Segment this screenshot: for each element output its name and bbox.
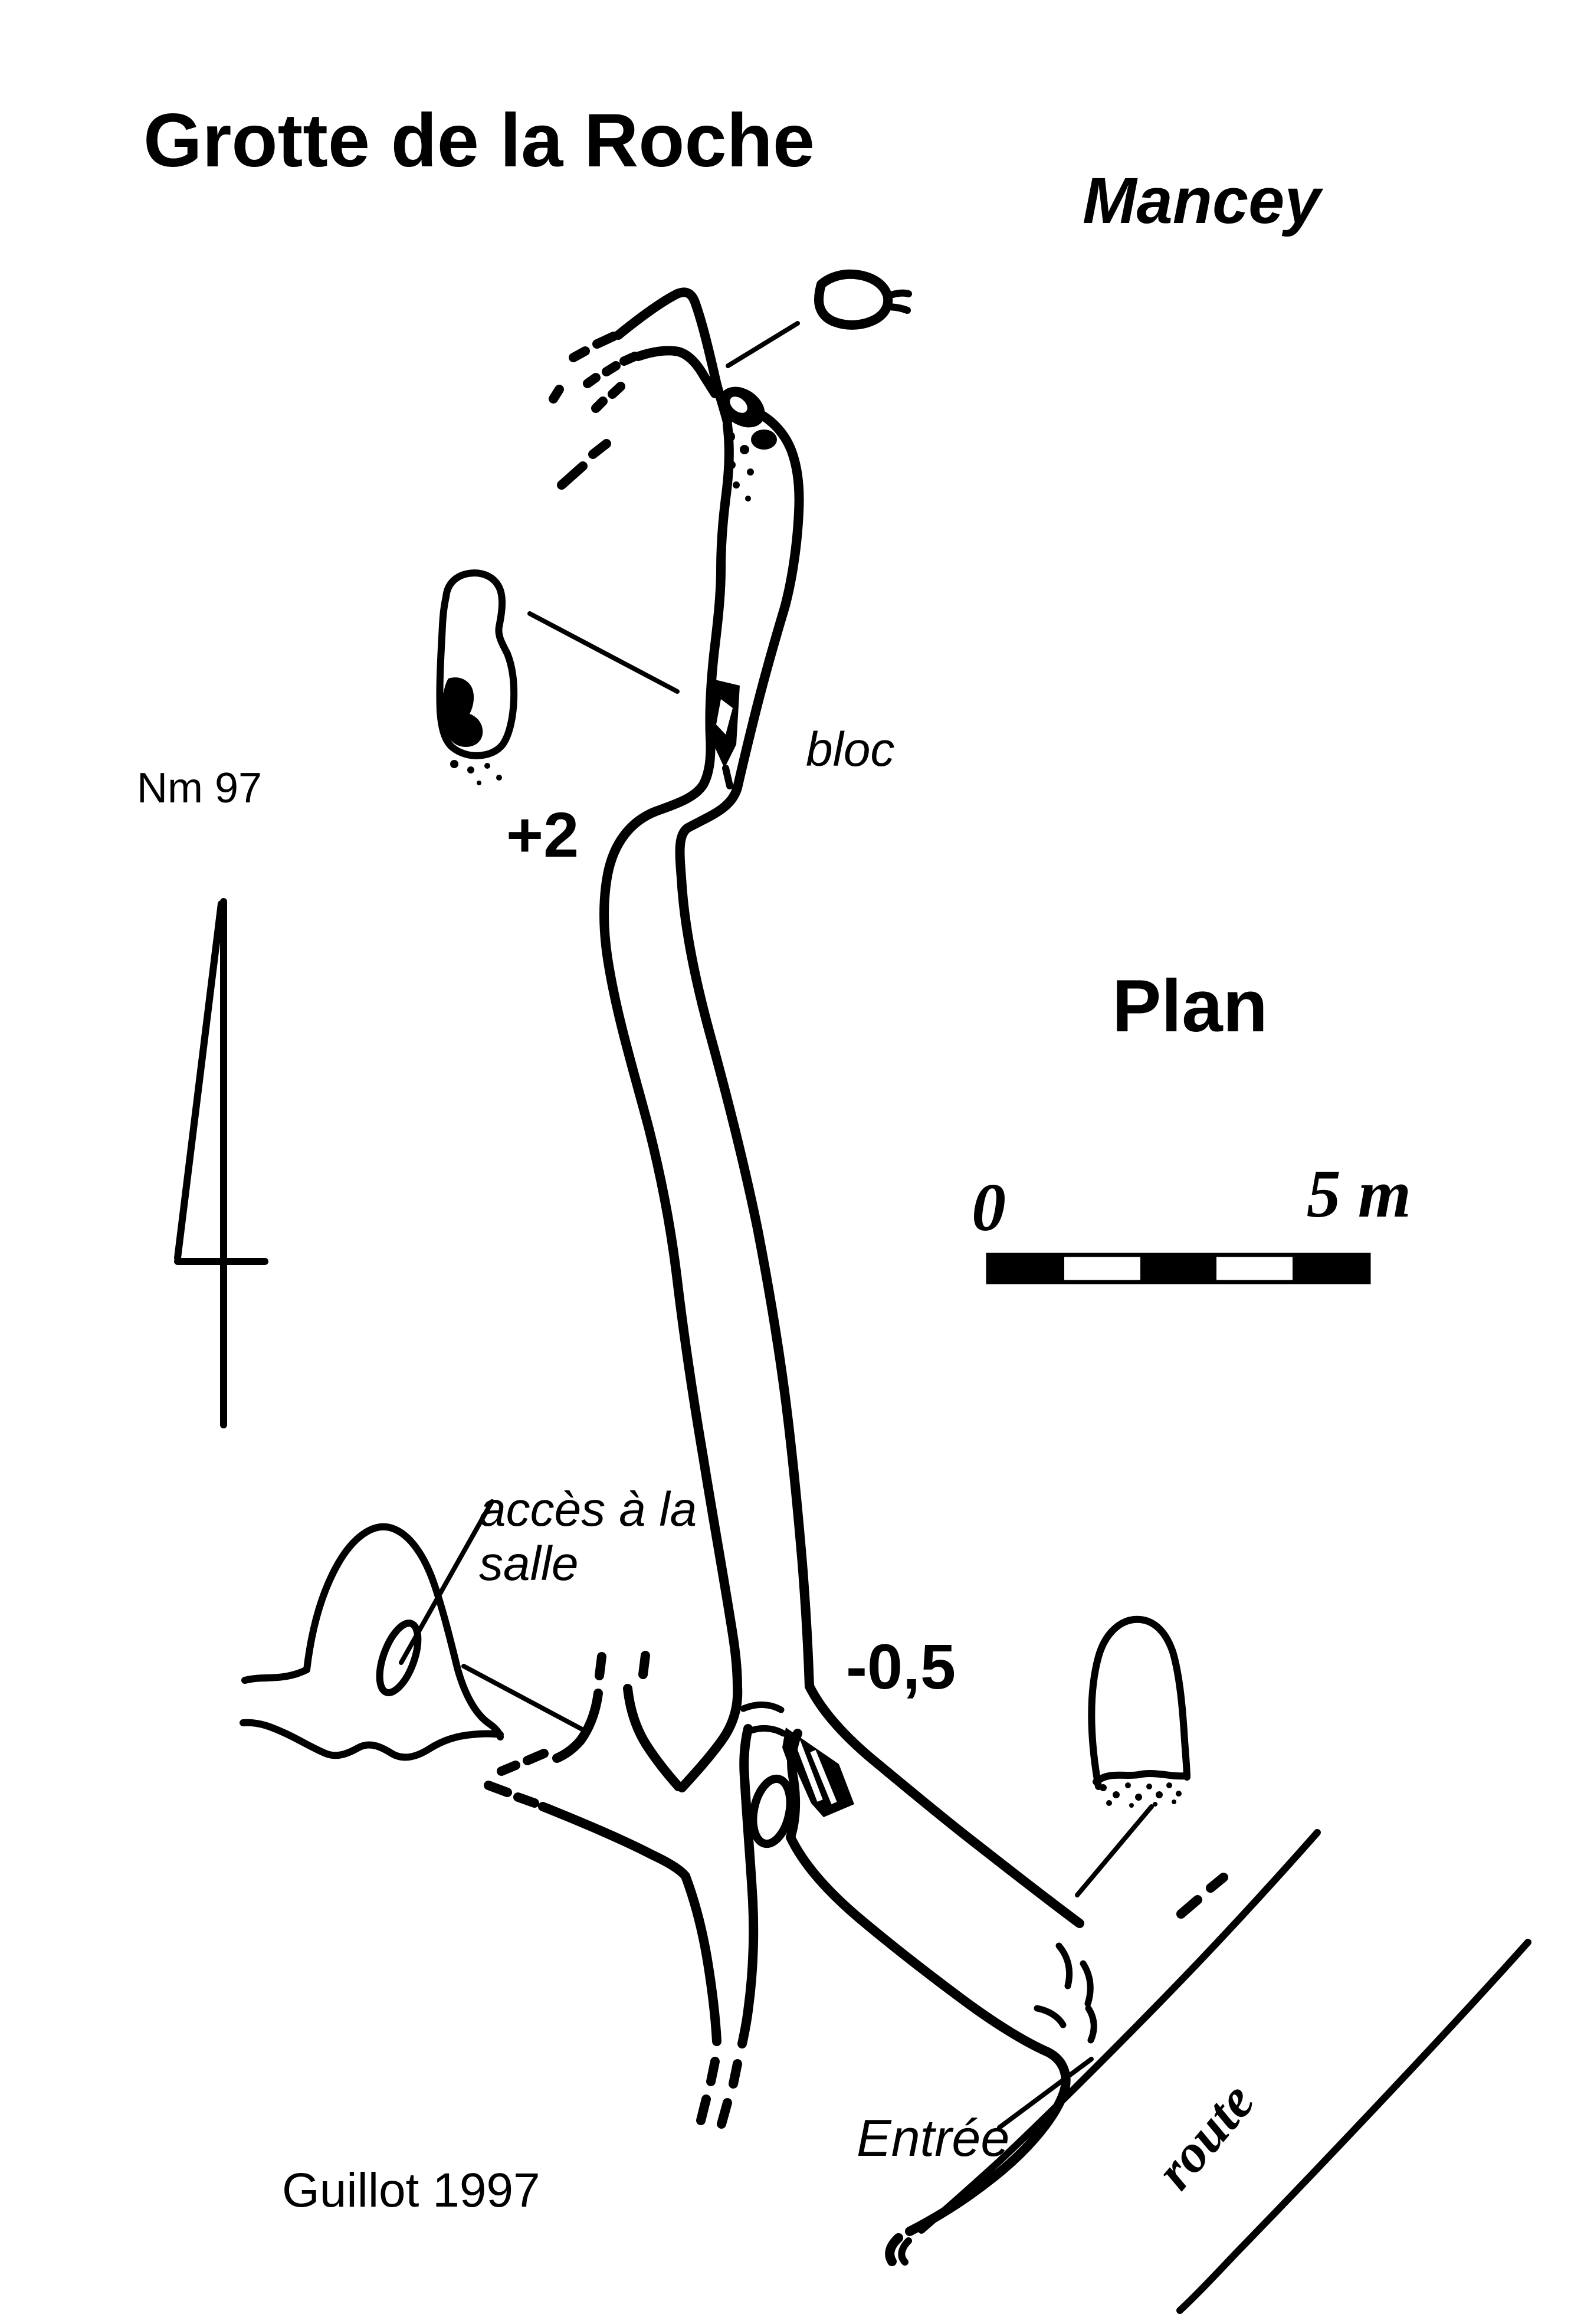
commune-label: Mancey	[1083, 165, 1323, 237]
chamber-dome	[307, 1527, 500, 1737]
upper-gallery-se-wall	[638, 350, 715, 394]
north-stub-right-wall	[628, 1689, 678, 1787]
road-label: route	[1144, 2071, 1265, 2200]
road-edge-upper-end-hook	[901, 2241, 909, 2262]
scale-zero-label: 0	[972, 1170, 1006, 1245]
acces-label-line1: accès à la	[479, 1483, 697, 1536]
boulder-pillar	[440, 573, 514, 785]
upper-gallery-outline	[553, 292, 809, 1687]
sw-branch-east-end-dashes	[721, 2064, 737, 2124]
north-arrow	[178, 902, 265, 1425]
leader-line-bloc	[530, 614, 677, 691]
north-ref-label: Nm 97	[137, 765, 262, 812]
scale-bar	[988, 1255, 1369, 1282]
cave-survey-map: Grotte de la Roche Mancey Nm 97 +2 Plan …	[0, 0, 1571, 2324]
bloc-label: bloc	[806, 723, 894, 776]
squeeze-breakdown	[711, 378, 777, 501]
block-detail-outline	[819, 274, 909, 325]
road-lines	[901, 1833, 1528, 2310]
entrance-sw-wall-end-hook	[890, 2238, 898, 2261]
acces-label-line2: salle	[479, 1537, 579, 1591]
chamber-base-wavy	[243, 1723, 500, 1758]
leader-line-block-detail	[728, 323, 798, 366]
scale-end-label: 5 m	[1307, 1156, 1411, 1232]
cave-survey-page: Grotte de la Roche Mancey Nm 97 +2 Plan …	[0, 0, 1571, 2324]
plan-view-label: Plan	[1112, 965, 1268, 1047]
sw-branch-west-end-dashes	[701, 2061, 715, 2120]
chimney-mound	[1091, 1620, 1187, 1808]
entrance-label: Entrée	[857, 2109, 1009, 2167]
elevation-plus2-label: +2	[506, 799, 579, 870]
chamber-mound	[243, 1527, 500, 1758]
junction-outline	[488, 1656, 1224, 2261]
chimney-floor-dots	[1100, 1782, 1182, 1808]
junction-left-wall	[682, 1687, 737, 1788]
sw-branch-west-wall	[543, 1807, 717, 2041]
upper-gallery-nw-wall-dashes	[562, 444, 606, 485]
entrance-slope-ticks	[1037, 1946, 1094, 2040]
north-stub-dashes	[599, 1656, 645, 1676]
credit-label: Guillot 1997	[282, 2164, 540, 2217]
leader-line-chimney	[1077, 1807, 1152, 1895]
west-continuation-dashes	[501, 1753, 544, 1771]
page-title: Grotte de la Roche	[143, 99, 815, 183]
upper-gallery-se-wall-dashes	[588, 356, 635, 408]
elevation-minus05-label: -0,5	[846, 1631, 956, 1702]
sw-branch-east-wall	[742, 1729, 753, 2044]
road-edge-upper	[921, 1833, 1317, 2230]
entrance-ne-wall-dashes	[1181, 1877, 1224, 1914]
bloc-symbol	[711, 680, 740, 786]
sw-branch-west-dashes	[488, 1785, 534, 1803]
main-gallery-east-wall	[680, 413, 809, 1686]
chamber-base-left	[245, 1670, 307, 1680]
